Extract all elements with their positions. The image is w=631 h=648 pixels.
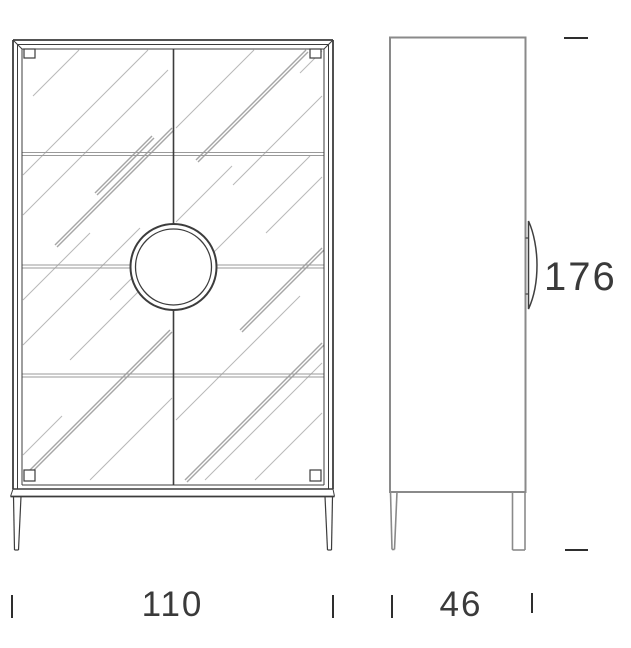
front-plinth xyxy=(11,485,335,497)
front-legs xyxy=(14,497,333,551)
side-handle xyxy=(526,221,538,309)
width-dimension-label: 110 xyxy=(142,585,204,624)
side-body xyxy=(390,38,526,493)
depth-dimension-label: 46 xyxy=(440,585,483,624)
front-view xyxy=(11,40,335,550)
technical-drawing: 110 46 176 xyxy=(0,0,631,648)
height-dimension-label: 176 xyxy=(544,255,617,299)
side-legs xyxy=(391,492,526,550)
technical-drawing-page: 110 46 176 xyxy=(0,0,631,648)
round-handle xyxy=(131,224,217,310)
side-view xyxy=(390,38,537,551)
